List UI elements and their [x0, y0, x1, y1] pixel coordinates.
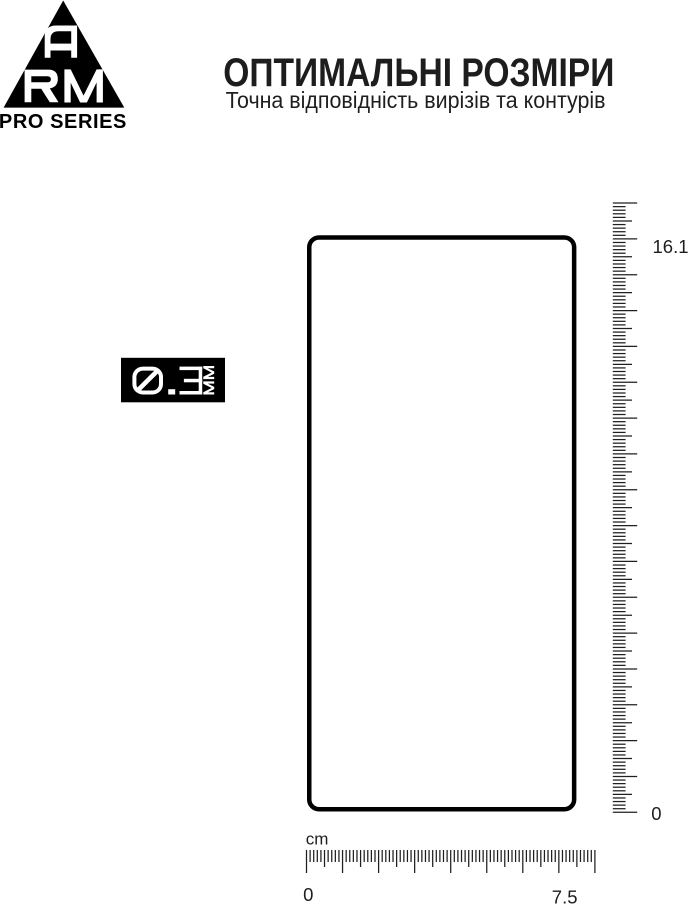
svg-text:0: 0 [651, 803, 661, 824]
svg-text:0: 0 [303, 884, 313, 905]
svg-text:16.1: 16.1 [653, 236, 688, 257]
svg-text:7.5: 7.5 [552, 886, 578, 907]
svg-text:cm: cm [306, 829, 329, 848]
svg-text:Точна відповідність вирізів та: Точна відповідність вирізів та контурів [226, 87, 606, 113]
svg-text:PRO SERIES: PRO SERIES [0, 111, 126, 133]
